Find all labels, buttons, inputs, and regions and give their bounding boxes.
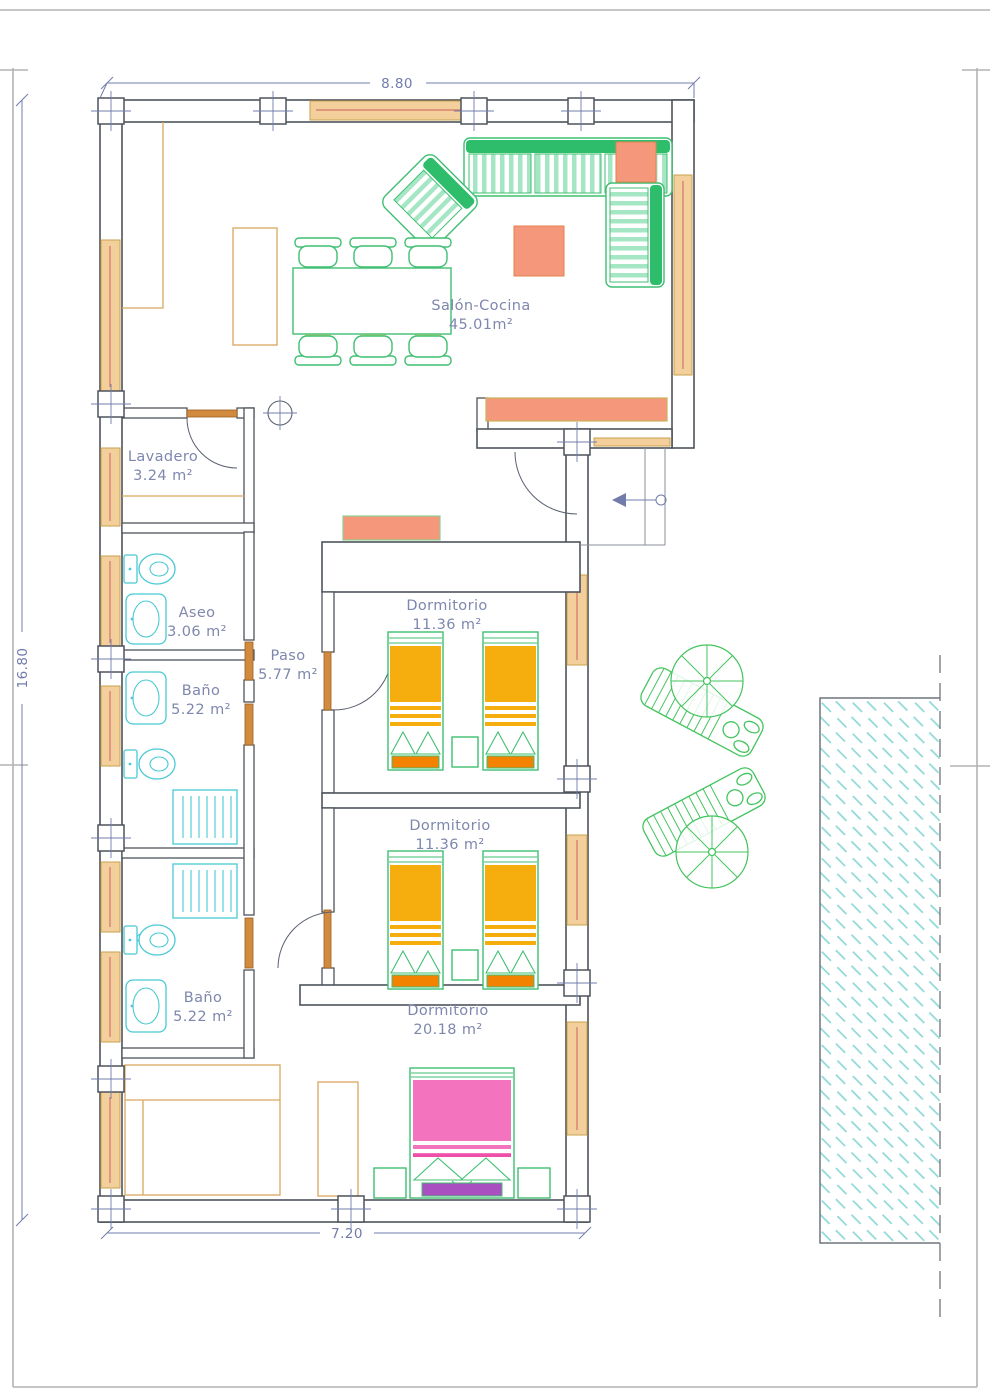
- dimension-left-value: 16.80: [15, 648, 31, 689]
- room-area: 5.22 m²: [173, 1009, 233, 1025]
- dining-chair: [405, 238, 451, 267]
- room-name: Baño: [184, 990, 223, 1006]
- shower-icon: [173, 790, 237, 844]
- swimming-pool: [820, 655, 940, 1320]
- sofa-two-seat: [606, 183, 664, 287]
- room-label-dormitorio2: Dormitorio 11.36 m²: [409, 818, 490, 853]
- nightstand: [452, 737, 478, 767]
- parasol-icon: [676, 816, 748, 888]
- hall-dresser: [343, 516, 440, 540]
- room-label-dormitorio1: Dormitorio 11.36 m²: [406, 598, 487, 633]
- room-label-bano1: Baño 5.22 m²: [171, 683, 231, 718]
- twin-bed: [388, 851, 443, 989]
- dimension-top-value: 8.80: [381, 76, 413, 92]
- room-name: Dormitorio: [409, 818, 490, 834]
- coffee-table: [514, 226, 564, 276]
- dining-chair: [350, 336, 396, 365]
- sink-icon: [126, 594, 166, 644]
- room-area: 11.36 m²: [412, 617, 481, 633]
- room-area: 45.01m²: [449, 317, 513, 333]
- toilet-icon: [124, 749, 175, 779]
- shower-icon: [173, 864, 237, 918]
- dining-chair: [350, 238, 396, 267]
- dining-chair: [405, 336, 451, 365]
- room-area: 20.18 m²: [413, 1022, 482, 1038]
- room-name: Salón-Cocina: [431, 298, 530, 314]
- parasol-icon: [671, 645, 743, 717]
- dimension-left: 16.80: [15, 94, 31, 1226]
- dining-set: [293, 238, 451, 365]
- room-name: Aseo: [179, 605, 216, 621]
- twin-bed: [483, 851, 538, 989]
- room-label-dormitorio3: Dormitorio 20.18 m²: [407, 1003, 488, 1038]
- room-label-paso: Paso 5.77 m²: [258, 648, 318, 683]
- bedroom2-beds: [388, 851, 538, 989]
- kitchen-worktop: [486, 398, 667, 421]
- room-area: 11.36 m²: [415, 837, 484, 853]
- toilet-icon: [124, 554, 175, 584]
- toilet-icon: [124, 925, 175, 955]
- room-name: Dormitorio: [406, 598, 487, 614]
- room-area: 5.22 m²: [171, 702, 231, 718]
- dimension-bottom: 7.20: [101, 1226, 591, 1242]
- dining-chair: [295, 238, 341, 267]
- sink-icon: [126, 980, 166, 1032]
- room-name: Paso: [270, 648, 305, 664]
- room-name: Baño: [182, 683, 221, 699]
- drain-symbol-icon: [263, 396, 297, 430]
- room-area: 3.06 m²: [167, 624, 227, 640]
- dimension-bottom-value: 7.20: [331, 1226, 363, 1242]
- floor-plan-canvas: 8.80 16.80 7.20 Salón-Cocina 45.01m² Lav…: [0, 0, 990, 1400]
- entrance-arrow-icon: [612, 493, 666, 507]
- sink-icon: [126, 672, 166, 724]
- side-table: [616, 142, 656, 182]
- room-name: Dormitorio: [407, 1003, 488, 1019]
- garden-furniture: [637, 645, 768, 888]
- nightstand: [374, 1168, 406, 1198]
- room-area: 5.77 m²: [258, 667, 318, 683]
- entrance-walkway: [580, 448, 666, 545]
- bath2-fixtures: [124, 864, 237, 1032]
- room-label-aseo: Aseo 3.06 m²: [167, 605, 227, 640]
- room-area: 3.24 m²: [133, 468, 193, 484]
- floor-plan-sheet: 8.80 16.80 7.20 Salón-Cocina 45.01m² Lav…: [0, 0, 990, 1400]
- twin-bed: [388, 632, 443, 770]
- bedroom1-beds: [388, 632, 538, 770]
- nightstand: [518, 1168, 550, 1198]
- twin-bed: [483, 632, 538, 770]
- double-bed: [410, 1068, 514, 1198]
- room-label-bano2: Baño 5.22 m²: [173, 990, 233, 1025]
- nightstand: [452, 950, 478, 980]
- dining-table: [293, 268, 451, 334]
- dimension-top: 8.80: [100, 76, 700, 98]
- bedroom3-bed: [374, 1068, 550, 1198]
- dining-chair: [295, 336, 341, 365]
- room-label-lavadero: Lavadero 3.24 m²: [128, 449, 198, 484]
- room-name: Lavadero: [128, 449, 198, 465]
